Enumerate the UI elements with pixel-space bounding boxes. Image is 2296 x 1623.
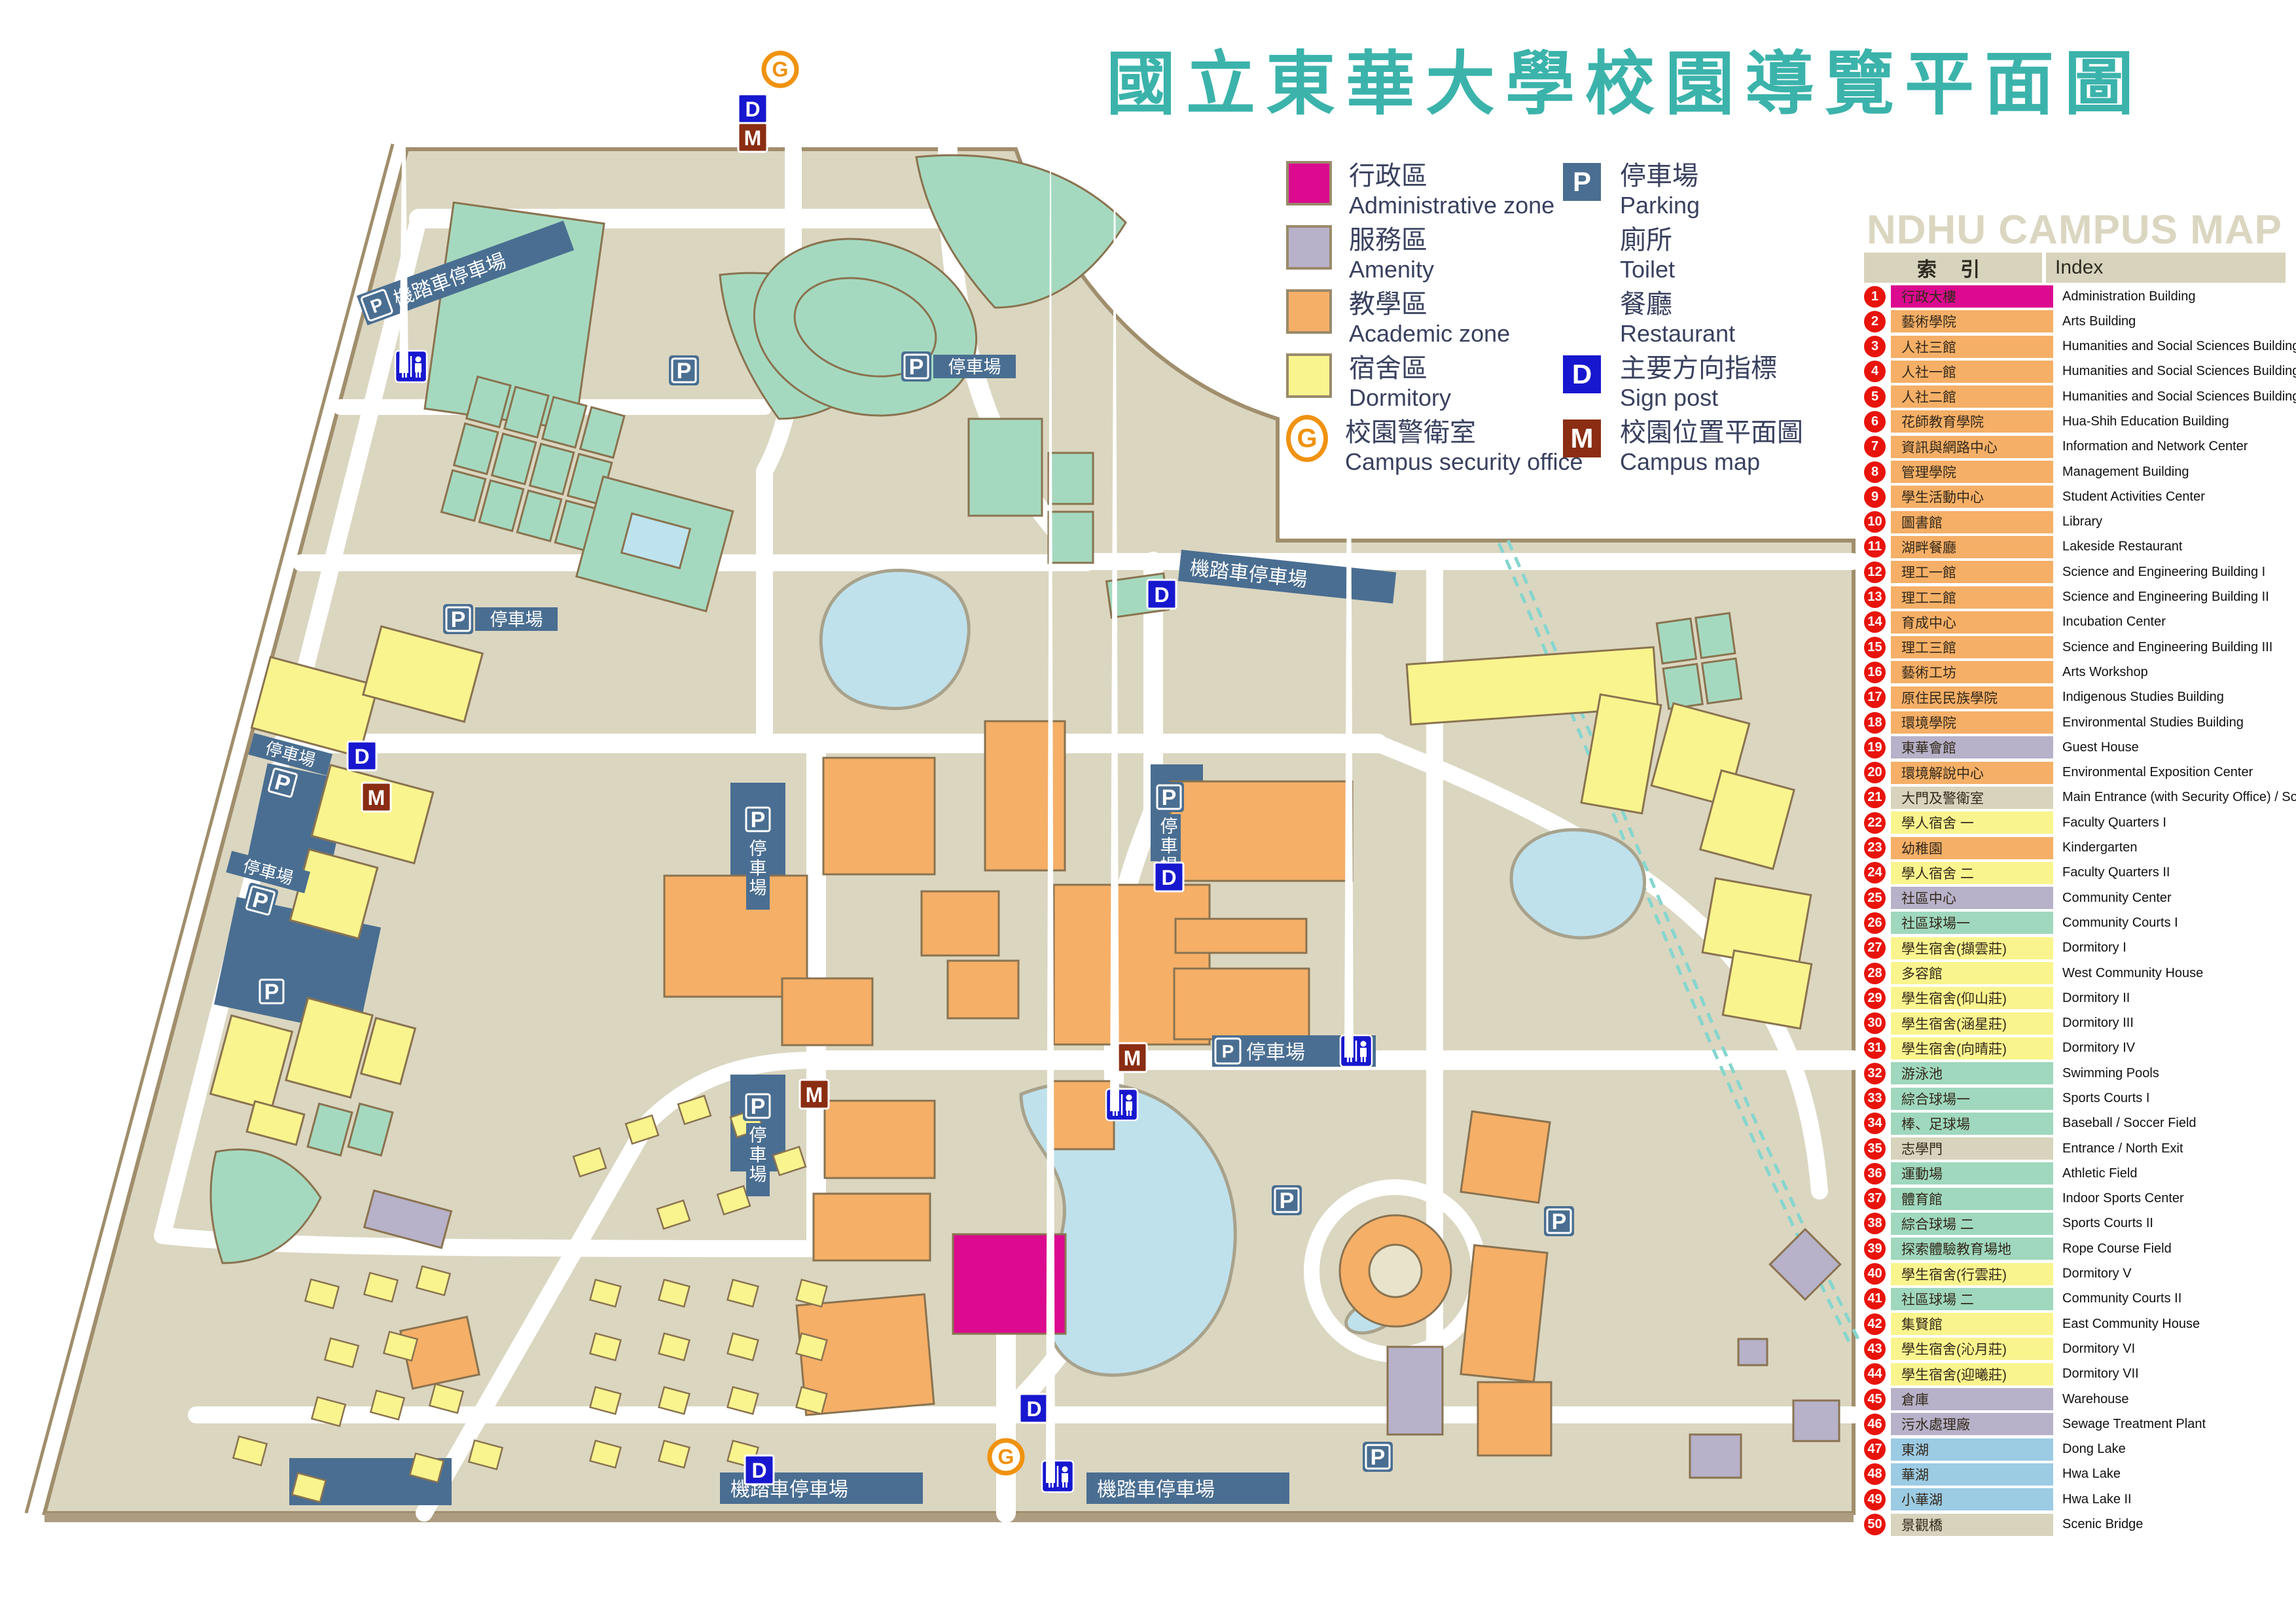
legend-label-en: Academic zone (1349, 319, 1510, 348)
index-name-en: Environmental Studies Building (2053, 715, 2244, 730)
index-name-en: Sewage Treatment Plant (2053, 1417, 2206, 1432)
index-name-zh: 集賢館 (1891, 1313, 2053, 1335)
admin-zone-swatch (1286, 161, 1332, 205)
index-row[interactable]: 4人社一館Humanities and Social Sciences Buil… (1864, 361, 2286, 383)
map-label: 停車場 (490, 610, 543, 630)
building-sewage-plant (1793, 1400, 1839, 1441)
map-label: P (1552, 1209, 1567, 1234)
index-name-en: Science and Engineering Building II (2053, 590, 2269, 605)
index-name-en: Rope Course Field (2053, 1241, 2172, 1257)
signpost-sign: D (1147, 580, 1176, 609)
index-name-en: Guest House (2053, 740, 2139, 755)
legend-label-en: Dormitory (1349, 383, 1451, 412)
index-name-zh: 景觀橋 (1891, 1514, 2053, 1536)
index-name-zh: 學生宿舍(迎曦莊) (1891, 1363, 2053, 1385)
index-row[interactable]: 50景觀橋Scenic Bridge (1864, 1514, 2286, 1536)
map-label: P (1371, 1445, 1386, 1470)
index-number-badge: 48 (1864, 1463, 1886, 1485)
index-name-zh: 人社一館 (1891, 361, 2053, 383)
security-office-icon: G (1286, 415, 1328, 462)
index-name-zh: 管理學院 (1891, 461, 2053, 483)
index-number-badge: 6 (1864, 411, 1886, 433)
legend-label-en: Toilet (1620, 255, 1675, 283)
index-row[interactable]: 33綜合球場一Sports Courts I (1864, 1088, 2286, 1110)
parking-sign: P (257, 976, 287, 1007)
motorbike-parking-banner: 機踏車停車場 (1086, 1472, 1289, 1504)
building-arts-workshop (1461, 1111, 1550, 1202)
index-name-en: Main Entrance (with Security Office) / S… (2053, 790, 2296, 805)
index-name-en: Incubation Center (2053, 615, 2166, 630)
index-row[interactable]: 27學生宿舍(擷雲莊)Dormitory I (1864, 937, 2286, 959)
index-number-badge: 24 (1864, 862, 1886, 883)
building-indigenous-court (1369, 1245, 1422, 1297)
security-office-icon: G (990, 1440, 1022, 1473)
index-row[interactable]: 7資訊與網路中心Information and Network Center (1864, 436, 2286, 458)
building-lakeside-restaurant (1049, 1081, 1114, 1149)
index-name-zh: 華湖 (1891, 1463, 2053, 1486)
index-number-badge: 39 (1864, 1238, 1886, 1260)
building-info-network (922, 891, 999, 955)
index-number-badge: 9 (1864, 486, 1886, 508)
index-name-en: Faculty Quarters I (2053, 815, 2166, 830)
index-number-badge: 16 (1864, 662, 1886, 683)
index-row[interactable]: 26社區球場一Community Courts I (1864, 912, 2286, 934)
index-number-badge: 18 (1864, 712, 1886, 734)
sports-court (1049, 512, 1093, 563)
index-number-badge: 20 (1864, 762, 1886, 783)
map-label: 停車場 (749, 839, 767, 898)
index-row[interactable]: 35志學門Entrance / North Exit (1864, 1137, 2286, 1160)
index-name-en: Science and Engineering Building III (2053, 640, 2272, 655)
index-header-en: Index (2046, 253, 2286, 283)
index-row[interactable]: 25社區中心Community Center (1864, 887, 2286, 909)
index-name-en: Baseball / Soccer Field (2053, 1116, 2197, 1131)
index-name-zh: 圖書館 (1891, 511, 2053, 533)
index-number-badge: 45 (1864, 1389, 1886, 1410)
building-incubation (1175, 919, 1306, 953)
map-label: 機踏車停車場 (1097, 1479, 1215, 1501)
map-label: P (751, 1094, 766, 1119)
legend-label-en: Parking (1620, 191, 1700, 219)
index-number-badge: 27 (1864, 937, 1886, 959)
building-management (823, 758, 935, 874)
index-row[interactable]: 37體育館Indoor Sports Center (1864, 1188, 2286, 1210)
index-number-badge: 11 (1864, 536, 1886, 558)
parking-sign: P (1363, 1442, 1393, 1472)
map-label: P (909, 355, 924, 380)
index-name-zh: 污水處理廠 (1891, 1413, 2053, 1435)
index-row[interactable]: 6花師教育學院Hua-Shih Education Building (1864, 410, 2286, 433)
index-name-zh: 行政大樓 (1891, 285, 2053, 308)
legend-label: 行政區 (1349, 161, 1554, 191)
map-label: P (1280, 1188, 1295, 1213)
parking-sign: P停車場 (443, 604, 558, 634)
signpost-icon: D (1563, 355, 1601, 393)
index-name-zh: 湖畔餐廳 (1891, 536, 2053, 558)
index-number-badge: 43 (1864, 1338, 1886, 1360)
index-panel: 索 引 Index 1行政大樓Administration Building2藝… (1864, 253, 2286, 1539)
index-row[interactable]: 3人社三館Humanities and Social Sciences Buil… (1864, 336, 2286, 358)
index-name-en: Warehouse (2053, 1392, 2129, 1407)
legend-zone-admin: 行政區 Administrative zone (1286, 161, 1554, 219)
index-number-badge: 1 (1864, 286, 1886, 308)
index-name-zh: 學生宿舍(行雲莊) (1891, 1263, 2053, 1285)
map-label: D (751, 1459, 766, 1482)
map-label: D (1026, 1397, 1041, 1421)
index-name-en: Management Building (2053, 465, 2189, 480)
building-env-college (1461, 1245, 1547, 1382)
page-title: 國立東華大學校園導覽平面圖 (1106, 27, 2049, 128)
index-name-en: Dormitory VII (2053, 1366, 2139, 1382)
index-name-en: Dong Lake (2053, 1442, 2126, 1457)
index-number-badge: 15 (1864, 637, 1886, 658)
index-name-zh: 綜合球場一 (1891, 1088, 2053, 1110)
index-name-zh: 人社三館 (1891, 336, 2053, 358)
legend-label: 教學區 (1349, 289, 1510, 319)
index-number-badge: 49 (1864, 1489, 1886, 1510)
index-name-en: Dormitory IV (2053, 1041, 2135, 1056)
legend-label: 餐廳 (1620, 289, 1735, 319)
index-row[interactable]: 18環境學院Environmental Studies Building (1864, 711, 2286, 734)
map-label: M (368, 786, 386, 810)
map-label: D (1161, 866, 1176, 889)
index-name-zh: 幼稚園 (1891, 837, 2053, 859)
index-row[interactable]: 29學生宿舍(仰山莊)Dormitory II (1864, 987, 2286, 1009)
legend-signpost: D 主要方向指標 Sign post (1561, 353, 1777, 412)
building-env-expo (1478, 1382, 1551, 1455)
index-row[interactable]: 32游泳池Swimming Pools (1864, 1062, 2286, 1084)
index-row[interactable]: 38綜合球場 二Sports Courts II (1864, 1213, 2286, 1235)
index-name-en: Sports Courts II (2053, 1216, 2153, 1231)
map-label: 停車場 (749, 1126, 767, 1185)
campus-map-page: P機踏車停車場機踏車停車場機踏車停車場機踏車停車場P停車場P停車場P停車場PP停… (0, 0, 2296, 1623)
index-row[interactable]: 42集賢館East Community House (1864, 1313, 2286, 1335)
index-name-zh: 多容館 (1891, 962, 2053, 984)
index-number-badge: 23 (1864, 837, 1886, 859)
index-number-badge: 44 (1864, 1363, 1886, 1385)
signpost-sign: D (738, 94, 767, 123)
index-name-en: Arts Workshop (2053, 665, 2148, 680)
signpost-sign: D (1155, 863, 1183, 891)
index-number-badge: 46 (1864, 1414, 1886, 1435)
index-row[interactable]: 36運動場Athletic Field (1864, 1162, 2286, 1185)
index-row[interactable]: 49小華湖Hwa Lake II (1864, 1488, 2286, 1510)
building-hss3 (814, 1194, 930, 1260)
map-label: M (806, 1083, 823, 1107)
legend-label: 校園警衛室 (1345, 418, 1583, 448)
parking-icon: P (1563, 163, 1601, 201)
campus-map-sign: M (362, 783, 391, 811)
map-label: D (1154, 583, 1169, 607)
index-row[interactable]: 28多容館West Community House (1864, 962, 2286, 984)
index-name-zh: 人社二館 (1891, 385, 2053, 408)
index-name-zh: 大門及警衛室 (1891, 787, 2053, 809)
legend-label: 服務區 (1349, 225, 1434, 255)
parking-sign: P (1544, 1206, 1574, 1236)
map-label: D (354, 745, 369, 768)
index-row[interactable]: 1行政大樓Administration Building (1864, 285, 2286, 308)
index-number-badge: 38 (1864, 1213, 1886, 1234)
index-row[interactable]: 34棒、足球場Baseball / Soccer Field (1864, 1113, 2286, 1135)
community-court-2 (1702, 658, 1742, 704)
index-row[interactable]: 23幼稚園Kindergarten (1864, 837, 2286, 859)
index-name-en: Science and Engineering Building I (2053, 565, 2265, 580)
index-row[interactable]: 5人社二館Humanities and Social Sciences Buil… (1864, 385, 2286, 408)
index-row[interactable]: 14育成中心Incubation Center (1864, 611, 2286, 633)
index-number-badge: 40 (1864, 1263, 1886, 1285)
index-name-zh: 東湖 (1891, 1438, 2053, 1461)
index-row[interactable]: 47東湖Dong Lake (1864, 1438, 2286, 1461)
index-number-badge: 41 (1864, 1288, 1886, 1310)
index-row[interactable]: 12理工一館Science and Engineering Building I (1864, 561, 2286, 583)
index-row[interactable]: 39探索體驗教育場地Rope Course Field (1864, 1238, 2286, 1260)
index-name-en: Library (2053, 514, 2102, 529)
campus-map-sign: M (800, 1080, 829, 1109)
restaurant-icon (1561, 289, 1603, 331)
map-label: P (264, 980, 279, 1005)
index-row[interactable]: 22學人宿舍 一Faculty Quarters I (1864, 811, 2286, 834)
indoor-sports-center (969, 419, 1042, 516)
index-number-badge: 21 (1864, 787, 1886, 808)
index-row[interactable]: 44學生宿舍(迎曦莊)Dormitory VII (1864, 1363, 2286, 1385)
index-name-zh: 社區球場一 (1891, 912, 2053, 934)
index-name-zh: 理工三館 (1891, 636, 2053, 658)
map-label: P (451, 607, 466, 632)
legend-label: 廁所 (1620, 225, 1675, 255)
index-number-badge: 4 (1864, 361, 1886, 382)
index-header-zh: 索 引 (1864, 253, 2042, 283)
index-name-en: Scenic Bridge (2053, 1517, 2143, 1532)
legend-label-en: Campus map (1620, 448, 1803, 476)
index-name-zh: 藝術學院 (1891, 310, 2053, 332)
community-court-2 (1657, 618, 1696, 664)
index-name-zh: 學生宿舍(涵星莊) (1891, 1012, 2053, 1035)
index-name-zh: 花師教育學院 (1891, 410, 2053, 433)
legend-label: 停車場 (1620, 161, 1700, 191)
index-name-en: Sports Courts I (2053, 1091, 2149, 1106)
amenity-zone-swatch (1286, 225, 1332, 270)
legend-zone-dorm: 宿舍區 Dormitory (1286, 353, 1451, 412)
index-name-zh: 育成中心 (1891, 611, 2053, 633)
index-name-en: Humanities and Social Sciences Building … (2053, 389, 2296, 404)
index-number-badge: 35 (1864, 1138, 1886, 1160)
signpost-sign: D (348, 741, 376, 770)
index-number-badge: 19 (1864, 737, 1886, 758)
map-label: M (1124, 1046, 1141, 1070)
index-name-en: Faculty Quarters II (2053, 865, 2170, 880)
index-row[interactable]: 19東華會館Guest House (1864, 736, 2286, 758)
index-name-zh: 資訊與網路中心 (1891, 436, 2053, 458)
index-row[interactable]: 11湖畔餐廳Lakeside Restaurant (1864, 536, 2286, 558)
index-name-en: Lakeside Restaurant (2053, 539, 2182, 554)
index-name-zh: 志學門 (1891, 1137, 2053, 1160)
sports-court (1049, 453, 1093, 504)
index-name-zh: 環境學院 (1891, 711, 2053, 734)
index-number-badge: 36 (1864, 1163, 1886, 1185)
legend-security: G 校園警衛室 Campus security office (1286, 418, 1583, 476)
index-row[interactable]: 45倉庫Warehouse (1864, 1388, 2286, 1410)
community-court-2 (1696, 613, 1735, 658)
index-number-badge: 47 (1864, 1438, 1886, 1460)
map-label: 停車場 (948, 357, 1001, 377)
parking-sign: P停車場 (901, 351, 1016, 382)
index-name-zh: 社區球場 二 (1891, 1288, 2053, 1310)
index-number-badge: 2 (1864, 311, 1886, 332)
map-label: D (745, 98, 760, 121)
legend-campusmap: M 校園位置平面圖 Campus map (1561, 418, 1803, 476)
index-number-badge: 10 (1864, 511, 1886, 533)
building-guest-house (1388, 1347, 1443, 1435)
index-name-zh: 運動場 (1891, 1162, 2053, 1185)
index-name-zh: 探索體驗教育場地 (1891, 1238, 2053, 1260)
index-name-zh: 理工一館 (1891, 561, 2053, 583)
legend-toilet: 廁所 Toilet (1561, 225, 1675, 283)
index-number-badge: 32 (1864, 1063, 1886, 1084)
index-name-en: Community Courts II (2053, 1291, 2181, 1306)
legend-restaurant: 餐廳 Restaurant (1561, 289, 1735, 348)
index-name-zh: 藝術工坊 (1891, 661, 2053, 683)
index-name-en: Hwa Lake (2053, 1467, 2121, 1482)
index-name-zh: 學生宿舍(擷雲莊) (1891, 937, 2053, 959)
index-row[interactable]: 43學生宿舍(沁月莊)Dormitory VI (1864, 1338, 2286, 1360)
building-hss2 (782, 978, 872, 1045)
index-name-en: Indoor Sports Center (2053, 1191, 2184, 1206)
index-name-en: Community Center (2053, 891, 2172, 906)
map-label: M (744, 126, 762, 150)
index-name-en: Hwa Lake II (2053, 1492, 2132, 1507)
building-dorm7 (1723, 950, 1812, 1028)
index-row[interactable]: 20環境解說中心Environmental Exposition Center (1864, 762, 2286, 784)
index-number-badge: 31 (1864, 1037, 1886, 1059)
index-number-badge: 42 (1864, 1313, 1886, 1335)
index-list: 1行政大樓Administration Building2藝術學院Arts Bu… (1864, 285, 2286, 1536)
index-row[interactable]: 16藝術工坊Arts Workshop (1864, 661, 2286, 683)
index-name-zh: 學生活動中心 (1891, 486, 2053, 508)
index-name-en: West Community House (2053, 966, 2203, 981)
index-row[interactable]: 9學生活動中心Student Activities Center (1864, 486, 2286, 508)
index-header: 索 引 Index (1864, 253, 2286, 283)
building-sci-eng3 (1174, 969, 1309, 1039)
index-row[interactable]: 24學人宿舍 二Faculty Quarters II (1864, 862, 2286, 884)
index-row[interactable]: 46污水處理廠Sewage Treatment Plant (1864, 1413, 2286, 1435)
index-name-en: Kindergarten (2053, 840, 2138, 855)
map-label: 停車場 (1246, 1042, 1305, 1063)
index-name-zh: 綜合球場 二 (1891, 1213, 2053, 1235)
index-number-badge: 29 (1864, 988, 1886, 1009)
index-name-en: Environmental Exposition Center (2053, 765, 2253, 780)
building-library (948, 961, 1018, 1018)
signpost-sign: D (1020, 1394, 1049, 1423)
index-number-badge: 34 (1864, 1113, 1886, 1134)
building-compost (1738, 1339, 1767, 1365)
legend-label-en: Sign post (1620, 383, 1777, 412)
index-name-en: Dormitory I (2053, 940, 2126, 955)
map-label: G (772, 58, 789, 81)
index-row[interactable]: 13理工二館Science and Engineering Building I… (1864, 586, 2286, 609)
map-label: G (998, 1445, 1014, 1469)
parking-sign: P停車場 (743, 1091, 773, 1196)
index-row[interactable]: 41社區球場 二Community Courts II (1864, 1288, 2286, 1310)
index-name-en: Dormitory VI (2053, 1342, 2135, 1357)
index-name-zh: 體育館 (1891, 1188, 2053, 1210)
index-number-badge: 14 (1864, 611, 1886, 633)
index-number-badge: 22 (1864, 812, 1886, 834)
index-name-en: Dormitory II (2053, 991, 2130, 1006)
legend-label-en: Administrative zone (1349, 191, 1554, 219)
campus-map-icon: M (1563, 419, 1601, 457)
index-name-zh: 學生宿舍(仰山莊) (1891, 987, 2053, 1009)
legend-label: 宿舍區 (1349, 353, 1451, 383)
index-number-badge: 3 (1864, 336, 1886, 357)
map-label: P (1162, 785, 1177, 810)
index-row[interactable]: 15理工三館Science and Engineering Building I… (1864, 636, 2286, 658)
index-row[interactable]: 21大門及警衛室Main Entrance (with Security Off… (1864, 787, 2286, 809)
index-name-zh: 學人宿舍 二 (1891, 862, 2053, 884)
legend-zone-amenity: 服務區 Amenity (1286, 225, 1434, 283)
legend-label-en: Campus security office (1345, 448, 1583, 476)
building-sci-eng2 (1170, 781, 1352, 881)
index-name-en: Humanities and Social Sciences Building … (2053, 364, 2296, 379)
index-name-en: Athletic Field (2053, 1166, 2138, 1181)
index-name-zh: 學生宿舍(沁月莊) (1891, 1338, 2053, 1360)
index-name-en: Arts Building (2053, 314, 2136, 329)
community-court-2 (1663, 664, 1702, 709)
academic-zone-swatch (1286, 289, 1332, 334)
index-name-zh: 棒、足球場 (1891, 1113, 2053, 1135)
index-name-en: Administration Building (2053, 289, 2195, 304)
index-name-en: Humanities and Social Sciences Building … (2053, 339, 2296, 354)
index-name-zh: 學人宿舍 一 (1891, 811, 2053, 834)
index-name-en: Information and Network Center (2053, 439, 2248, 454)
index-number-badge: 26 (1864, 912, 1886, 934)
index-name-en: Hua-Shih Education Building (2053, 414, 2229, 429)
index-name-zh: 學生宿舍(向晴莊) (1891, 1037, 2053, 1060)
index-row[interactable]: 31學生宿舍(向晴莊)Dormitory IV (1864, 1037, 2286, 1060)
index-number-badge: 50 (1864, 1514, 1886, 1535)
index-number-badge: 17 (1864, 687, 1886, 708)
index-row[interactable]: 17原住民民族學院Indigenous Studies Building (1864, 687, 2286, 709)
legend-parking: P 停車場 Parking (1561, 161, 1700, 219)
index-row[interactable]: 40學生宿舍(行雲莊)Dormitory V (1864, 1263, 2286, 1285)
index-number-badge: 8 (1864, 461, 1886, 483)
map-label: P (1222, 1041, 1234, 1061)
campus-map-sign: M (738, 123, 767, 152)
index-row[interactable]: 10圖書館Library (1864, 511, 2286, 533)
index-name-zh: 原住民民族學院 (1891, 687, 2053, 709)
index-number-badge: 37 (1864, 1188, 1886, 1209)
index-number-badge: 12 (1864, 562, 1886, 583)
index-number-badge: 28 (1864, 963, 1886, 984)
legend-zone-academic: 教學區 Academic zone (1286, 289, 1510, 348)
index-row[interactable]: 48華湖Hwa Lake (1864, 1463, 2286, 1486)
index-watermark: NDHU CAMPUS MAP (1867, 207, 2286, 253)
index-number-badge: 30 (1864, 1012, 1886, 1034)
index-row[interactable]: 8管理學院Management Building (1864, 461, 2286, 483)
index-name-en: Swimming Pools (2053, 1066, 2159, 1081)
legend-label-en: Restaurant (1620, 319, 1735, 348)
index-row[interactable]: 30學生宿舍(涵星莊)Dormitory III (1864, 1012, 2286, 1035)
index-number-badge: 33 (1864, 1088, 1886, 1109)
index-row[interactable]: 2藝術學院Arts Building (1864, 310, 2286, 332)
legend-label: 校園位置平面圖 (1620, 418, 1803, 448)
index-name-en: Dormitory III (2053, 1016, 2134, 1031)
index-number-badge: 25 (1864, 887, 1886, 909)
lake-hwa (821, 570, 969, 708)
map-label: P (751, 808, 766, 832)
index-name-zh: 倉庫 (1891, 1388, 2053, 1410)
index-name-en: Entrance / North Exit (2053, 1141, 2183, 1156)
index-name-zh: 東華會館 (1891, 736, 2053, 758)
